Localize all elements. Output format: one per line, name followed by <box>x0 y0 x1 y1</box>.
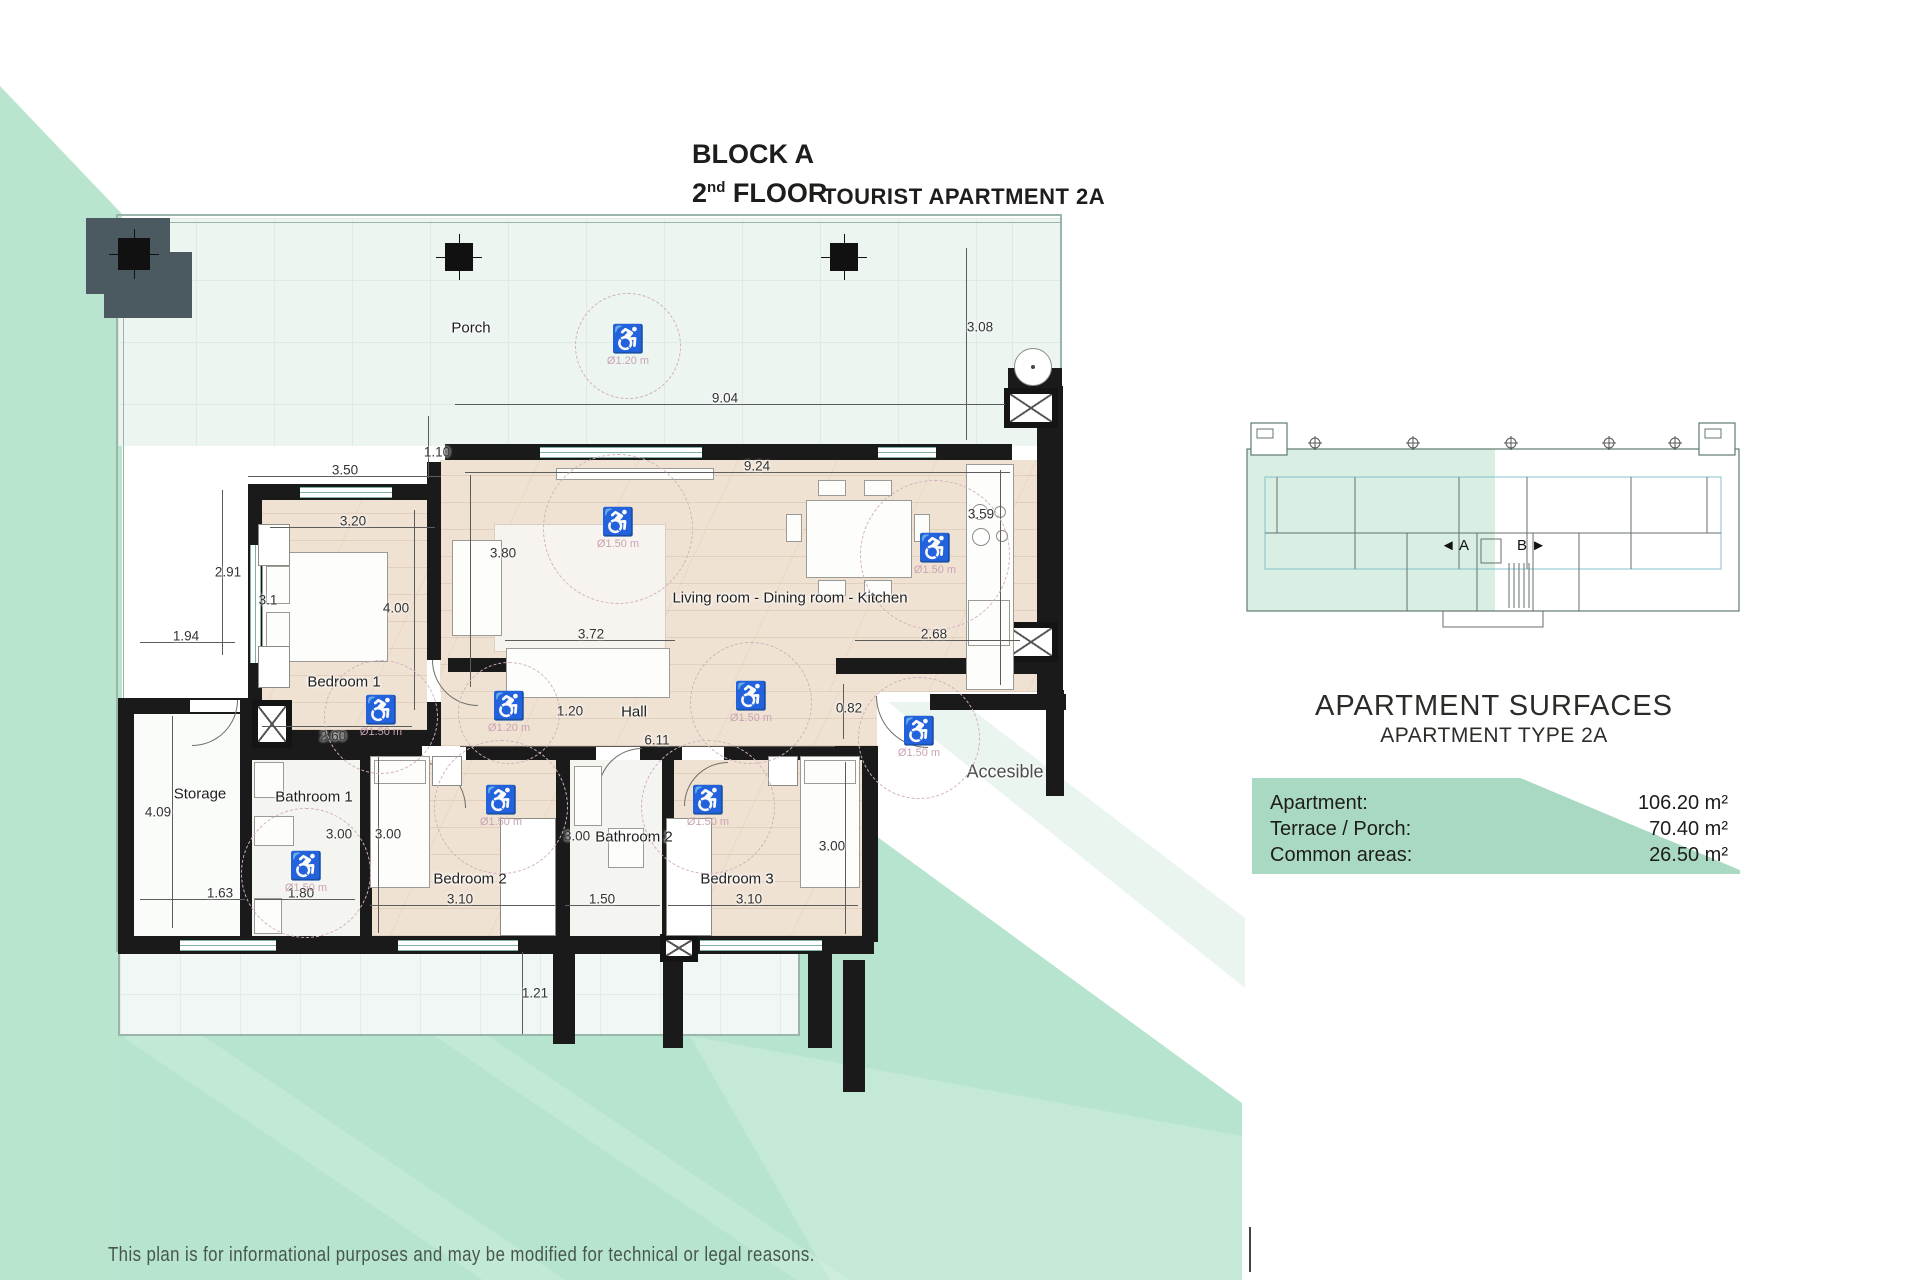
accessibility-radius: ♿Ø1.50 m <box>860 480 1010 630</box>
accessibility-diameter-label: Ø1.50 m <box>360 726 402 738</box>
wheelchair-icon: ♿ <box>691 787 725 814</box>
accessibility-diameter-label: Ø1.50 m <box>914 564 956 576</box>
dimension-label: 3.00 <box>375 827 401 842</box>
bathroom-cabinet <box>574 766 602 826</box>
window <box>180 940 276 951</box>
wall <box>427 462 441 660</box>
accessibility-radius: ♿Ø1.50 m <box>241 808 371 938</box>
dimension-label: 1.21 <box>522 986 548 1001</box>
dimension-label: 9.24 <box>744 459 770 474</box>
dimension-label: 3.20 <box>340 514 366 529</box>
room-label: Bathroom 1 <box>275 789 353 806</box>
surface-value: 26.50 m² <box>1649 842 1728 868</box>
room-label: Hall <box>621 704 647 721</box>
wheelchair-icon: ♿ <box>364 697 398 724</box>
porch-outline <box>1060 214 1062 390</box>
disclaimer-text: This plan is for informational purposes … <box>108 1244 815 1267</box>
key-plan-columns <box>1308 436 1682 450</box>
dimension-label: 3.08 <box>967 320 993 335</box>
accessibility-radius: ♿Ø1.50 m <box>641 740 775 874</box>
column-marker <box>830 243 858 271</box>
shaft-box <box>660 934 698 962</box>
accessibility-radius: ♿Ø1.50 m <box>858 677 980 799</box>
accessibility-diameter-label: Ø1.50 m <box>730 712 772 724</box>
surface-label: Apartment: <box>1270 790 1368 816</box>
page: BLOCK A 2nd FLOOR TOURIST APARTMENT 2A P… <box>0 0 1920 1280</box>
wall <box>553 948 575 1044</box>
dimension-label: 9.04 <box>712 391 738 406</box>
dimension-label: 3.10 <box>736 892 762 907</box>
accessibility-radius: ♿Ø1.50 m <box>543 454 693 604</box>
dimension-label: 4.09 <box>145 805 171 820</box>
accessibility-diameter-label: Ø1.20 m <box>488 722 530 734</box>
key-plan: ◄ A B ► <box>1237 413 1749 637</box>
dimension-line <box>465 472 1010 473</box>
dimension-line <box>172 716 173 928</box>
wheelchair-icon: ♿ <box>918 535 952 562</box>
window <box>878 447 936 458</box>
accessibility-radius: ♿Ø1.20 m <box>575 293 681 399</box>
dimension-label: 4.00 <box>383 601 409 616</box>
dimension-label: 6.11 <box>644 733 669 748</box>
wheelchair-icon: ♿ <box>734 683 768 710</box>
wheelchair-icon: ♿ <box>902 718 936 745</box>
key-plan-apartment-a-highlight <box>1247 449 1495 611</box>
surfaces-row: Common areas: 26.50 m² <box>1270 842 1728 868</box>
window <box>398 940 518 951</box>
room-label: Porch <box>451 320 490 337</box>
chair <box>818 480 846 496</box>
porch-outline <box>116 222 1062 223</box>
pillow <box>266 612 290 650</box>
column-marker <box>445 243 473 271</box>
wheelchair-icon: ♿ <box>289 853 323 880</box>
dimension-label: 1.10 <box>424 445 450 460</box>
key-plan-label-a: ◄ A <box>1441 537 1469 554</box>
door-arc <box>598 748 642 792</box>
dimension-label: 2.91 <box>215 565 241 580</box>
accessibility-radius: ♿Ø1.50 m <box>324 660 438 774</box>
pillow <box>804 760 856 784</box>
shaft-box <box>1004 388 1058 428</box>
dimension-label: 3.72 <box>578 627 604 642</box>
column-marker <box>118 238 150 270</box>
dimension-label: 1.50 <box>589 892 615 907</box>
cursor-mark <box>1249 1227 1251 1272</box>
wheelchair-icon: ♿ <box>601 509 635 536</box>
accessibility-diameter-label: Ø1.50 m <box>480 816 522 828</box>
wall <box>663 948 683 1048</box>
washing-machine-dot <box>1031 365 1035 369</box>
storage-floor <box>134 714 240 936</box>
dimension-label: 0.82 <box>836 701 862 716</box>
accessibility-radius: ♿Ø1.50 m <box>434 740 568 874</box>
wardrobe <box>258 646 290 688</box>
key-plan-label-b: B ► <box>1517 537 1546 554</box>
accessibility-diameter-label: Ø1.20 m <box>607 355 649 367</box>
accessibility-diameter-label: Ø1.50 m <box>597 538 639 550</box>
dimension-label: 1.94 <box>173 629 199 644</box>
wheelchair-icon: ♿ <box>611 326 645 353</box>
window <box>300 487 392 498</box>
chair <box>786 514 802 542</box>
dimension-label: 3.00 <box>564 829 590 844</box>
accessibility-diameter-label: Ø1.50 m <box>898 747 940 759</box>
dimension-line <box>470 475 471 687</box>
dimension-line <box>845 762 846 934</box>
porch-outline <box>116 214 1062 216</box>
wheelchair-icon: ♿ <box>484 787 518 814</box>
accessibility-diameter-label: Ø1.50 m <box>285 882 327 894</box>
dimension-label: 3.80 <box>490 546 516 561</box>
surfaces-subheading: APARTMENT TYPE 2A <box>1380 724 1608 748</box>
dimension-line <box>966 248 967 440</box>
dimension-line <box>378 757 379 933</box>
dimension-label: 3.1 <box>259 593 278 608</box>
dimension-line <box>668 905 858 906</box>
wheelchair-icon: ♿ <box>492 693 526 720</box>
surfaces-row: Apartment: 106.20 m² <box>1270 790 1728 816</box>
shaft-box <box>252 700 292 748</box>
wall <box>1046 690 1064 796</box>
room-label: Accesible <box>966 762 1043 783</box>
dimension-label: 1.63 <box>207 886 233 901</box>
room-label: Storage <box>174 786 227 803</box>
wall <box>808 948 832 1048</box>
accessibility-diameter-label: Ø1.50 m <box>687 816 729 828</box>
dimension-label: 3.00 <box>819 839 845 854</box>
surface-label: Common areas: <box>1270 842 1412 868</box>
dimension-label: 3.10 <box>447 892 473 907</box>
wall <box>843 960 865 1092</box>
dimension-label: 3.50 <box>332 463 358 478</box>
chair <box>864 480 892 496</box>
wardrobe <box>258 524 290 566</box>
surfaces-table: Apartment: 106.20 m² Terrace / Porch: 70… <box>1270 790 1728 868</box>
floor-plan: PorchLiving room - Dining room - Kitchen… <box>0 0 1920 1280</box>
surface-value: 70.40 m² <box>1649 816 1728 842</box>
dimension-label: 1.20 <box>557 704 583 719</box>
surface-label: Terrace / Porch: <box>1270 816 1411 842</box>
window <box>700 940 822 951</box>
nightstand <box>768 756 798 786</box>
surfaces-heading: APARTMENT SURFACES <box>1315 690 1673 723</box>
surfaces-row: Terrace / Porch: 70.40 m² <box>1270 816 1728 842</box>
wall <box>118 698 134 952</box>
surface-value: 106.20 m² <box>1638 790 1728 816</box>
